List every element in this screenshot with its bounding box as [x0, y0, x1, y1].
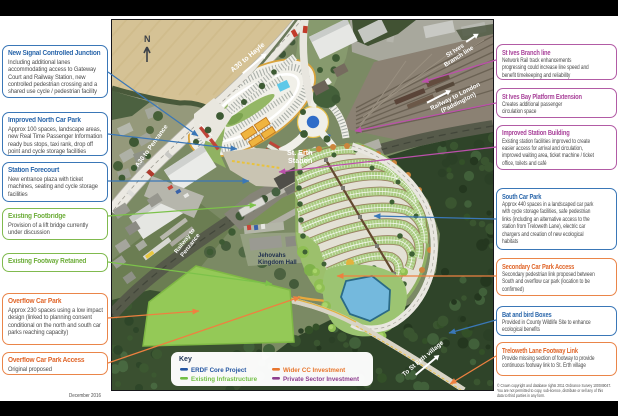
- svg-text:ERDF Core Project: ERDF Core Project: [191, 367, 246, 374]
- svg-text:Key: Key: [179, 356, 192, 363]
- svg-text:Existing Infrastructure: Existing Infrastructure: [191, 376, 258, 383]
- svg-text:Jehovahs: Jehovahs: [258, 253, 286, 259]
- svg-text:N: N: [144, 34, 151, 44]
- svg-text:Kingdom Hall: Kingdom Hall: [258, 260, 297, 266]
- svg-text:Wider CC Investment: Wider CC Investment: [283, 367, 345, 374]
- svg-text:Private Sector Investment: Private Sector Investment: [283, 376, 359, 383]
- svg-text:Station: Station: [288, 156, 312, 165]
